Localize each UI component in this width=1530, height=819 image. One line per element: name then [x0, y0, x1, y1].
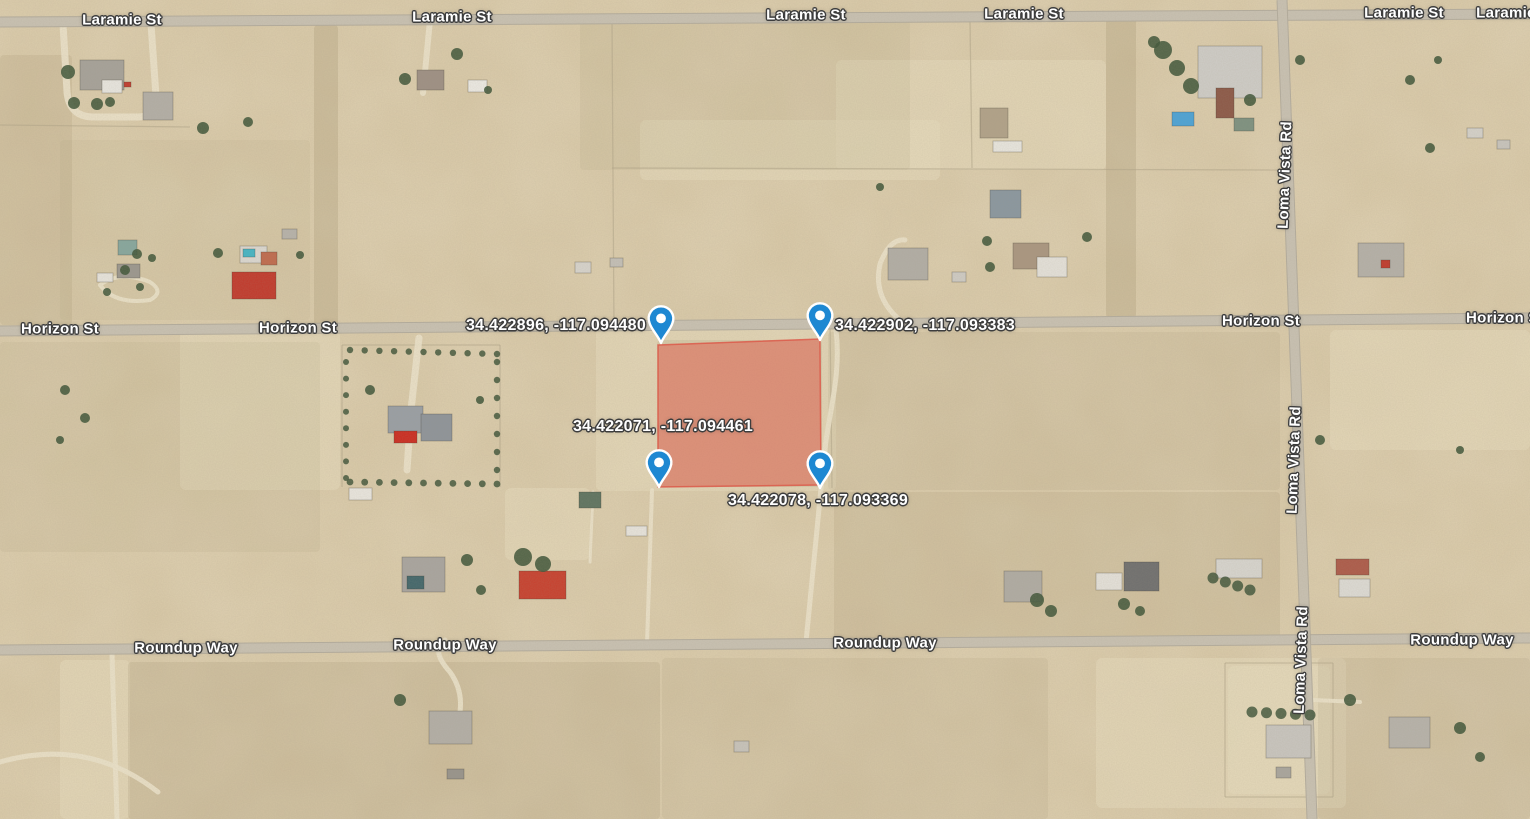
highlighted-parcel[interactable] — [658, 339, 821, 487]
satellite-imagery — [0, 0, 1530, 819]
parcel-layer — [658, 339, 821, 487]
satellite-map-canvas[interactable]: Laramie StLaramie StLaramie StLaramie St… — [0, 0, 1530, 819]
